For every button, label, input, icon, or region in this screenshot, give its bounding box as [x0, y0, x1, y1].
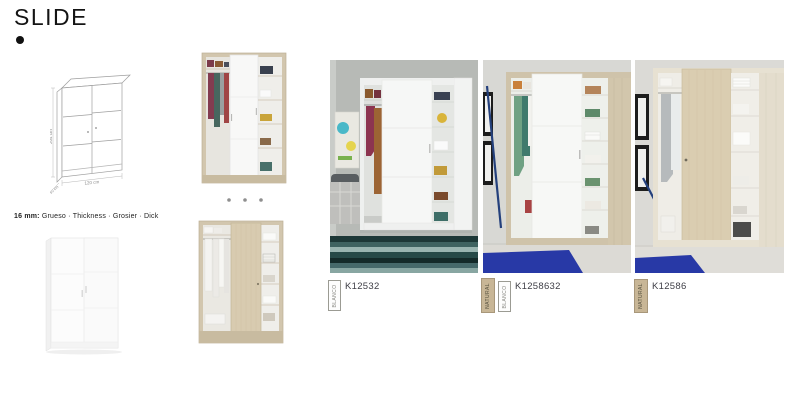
blue-rug	[483, 250, 583, 273]
sliding-door-oak	[231, 223, 261, 341]
shelf-compartment	[432, 85, 454, 223]
white-wardrobe-closed-render	[42, 233, 122, 363]
product-code: K1258632	[515, 281, 561, 292]
product-photo-k1258632	[483, 60, 631, 273]
door-handle-icon	[256, 108, 257, 115]
thickness-value: 16 mm:	[14, 213, 40, 220]
depth-dimension: 50 cm	[50, 185, 59, 195]
series-bullet	[16, 36, 24, 44]
product-photo-k12532	[330, 60, 478, 273]
door-handle-icon	[579, 150, 581, 159]
door-handle-icon	[429, 144, 431, 153]
thickness-translations: Grueso · Thickness · Grosier · Dick	[40, 213, 159, 220]
thickness-note: 16 mm: Grueso · Thickness · Grosier · Di…	[14, 213, 158, 220]
wardrobe-natural-white	[506, 72, 631, 245]
wardrobe-white	[360, 78, 472, 230]
product-code: K12586	[652, 281, 687, 292]
left-compartment-clothes	[206, 57, 230, 175]
storage-basket	[330, 174, 361, 224]
swatch-label: BLANCO	[502, 285, 508, 308]
door-handle-icon	[85, 286, 86, 293]
swatch-natural: NATURAL	[634, 279, 648, 313]
swatch-label: BLANCO	[332, 284, 338, 307]
swatch-label: NATURAL	[485, 283, 491, 309]
wall-poster	[335, 112, 359, 168]
product-code: K12532	[345, 281, 380, 292]
swatch-label: NATURAL	[638, 283, 644, 309]
ellipsis-dots-icon	[222, 195, 270, 205]
door-handle-icon	[87, 131, 89, 133]
height-dimension: 204 cm	[50, 129, 53, 144]
width-dimension: 120 cm	[84, 179, 99, 186]
left-compartment-clothes	[203, 225, 231, 331]
door-handle-icon	[685, 159, 688, 162]
wardrobe-natural	[653, 68, 784, 247]
page-title: SLIDE	[14, 4, 88, 31]
sliding-door-white	[230, 55, 258, 181]
door-handle-icon	[95, 127, 97, 129]
drawing-side-face	[57, 88, 62, 182]
open-wardrobe-oak-door-render	[197, 218, 285, 348]
door-handle-icon	[257, 283, 259, 285]
shelf-compartment	[731, 73, 759, 240]
swatch-blanco: BLANCO	[328, 280, 341, 311]
sliding-door-oak	[682, 69, 731, 243]
open-wardrobe-white-door-render	[200, 50, 288, 190]
swatch-natural: NATURAL	[481, 278, 495, 313]
catalog-page: SLIDE 204 cm 120 cm 50 cm 16 mm: Grueso …	[0, 0, 800, 400]
swatch-blanco: BLANCO	[498, 281, 511, 312]
shelf-compartment	[582, 78, 608, 238]
product-photo-k12586	[635, 60, 784, 273]
striped-rug	[330, 236, 478, 273]
technical-drawing: 204 cm 120 cm 50 cm	[50, 72, 140, 204]
door-handle-icon	[82, 290, 83, 297]
door-handle-icon	[231, 114, 232, 121]
